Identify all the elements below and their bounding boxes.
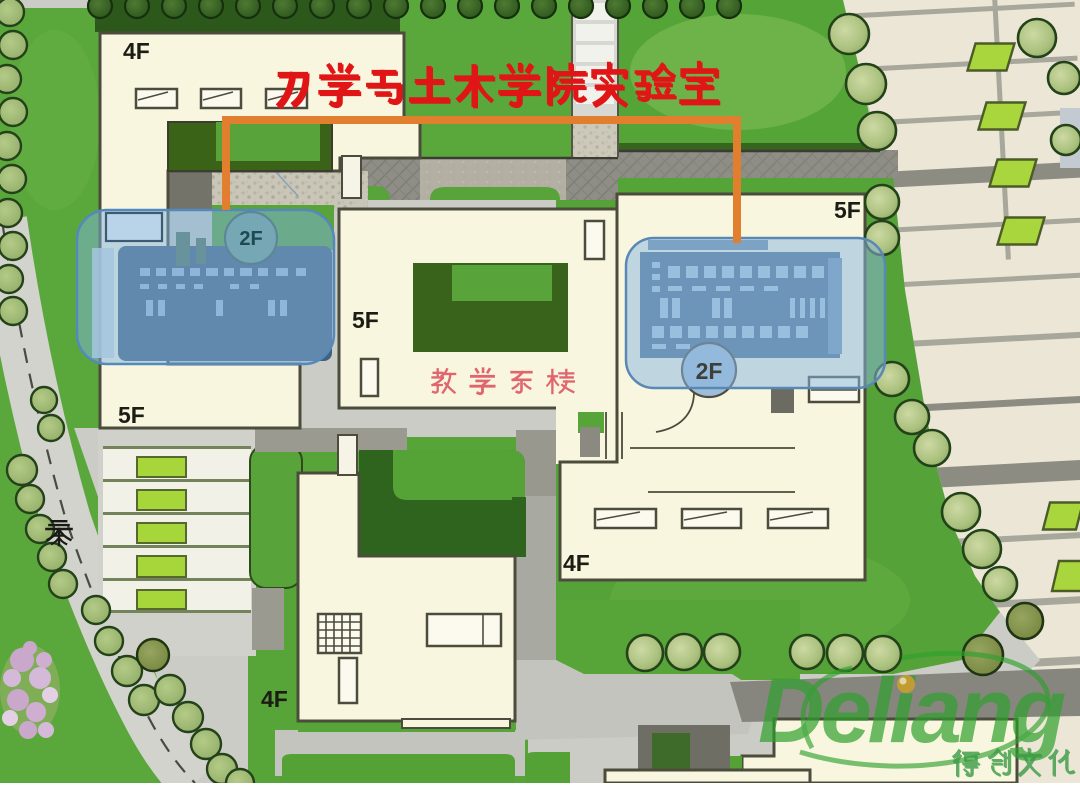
svg-text:4F: 4F: [261, 686, 288, 712]
svg-text:4F: 4F: [123, 38, 150, 64]
svg-text:4F: 4F: [563, 550, 590, 576]
svg-text:2F: 2F: [239, 228, 262, 250]
svg-text:5F: 5F: [834, 197, 861, 223]
svg-text:5F: 5F: [352, 307, 379, 333]
svg-text:Deliang: Deliang: [758, 660, 1065, 762]
svg-text:2F: 2F: [696, 358, 723, 384]
svg-text:5F: 5F: [118, 402, 145, 428]
